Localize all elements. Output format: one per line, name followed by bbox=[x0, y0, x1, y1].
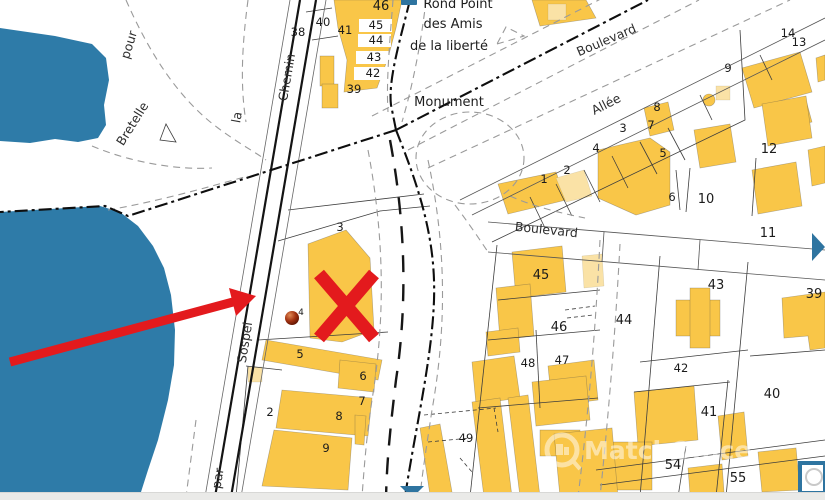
parcel-label: 44 bbox=[616, 313, 633, 328]
parcel-label: 7 bbox=[358, 394, 365, 408]
street-label: par bbox=[209, 466, 227, 490]
water-top-left bbox=[0, 28, 109, 143]
water-areas bbox=[0, 28, 175, 492]
parcel-label: 44 bbox=[369, 33, 384, 47]
building bbox=[582, 254, 604, 288]
parcel-label: 10 bbox=[698, 192, 715, 207]
road-dashed bbox=[126, 0, 266, 160]
street-label: Sospel bbox=[234, 321, 255, 364]
street-label: pour bbox=[117, 28, 140, 61]
parcel-label: 1 bbox=[540, 172, 547, 186]
parcel-line bbox=[676, 170, 680, 210]
pan-right-arrow[interactable] bbox=[812, 233, 825, 261]
parcel-label: 49 bbox=[459, 431, 474, 445]
parcel-label: 54 bbox=[665, 458, 682, 473]
parcel-line bbox=[567, 315, 593, 318]
parcel-label: 4 bbox=[298, 308, 304, 318]
parcel-line bbox=[460, 458, 472, 472]
corner-logo-button[interactable] bbox=[800, 463, 825, 493]
parcel-label: 2 bbox=[266, 405, 273, 419]
parcel-label: 41 bbox=[338, 23, 353, 37]
building bbox=[355, 415, 366, 445]
pan-up-tab[interactable] bbox=[401, 0, 417, 5]
parcel-label: 8 bbox=[653, 100, 660, 114]
street-label: Boulevard bbox=[514, 219, 578, 241]
parcel-label: 46 bbox=[373, 0, 390, 14]
building bbox=[262, 430, 352, 490]
monument-label: Monument bbox=[414, 95, 484, 110]
parcel-label: 5 bbox=[296, 347, 303, 361]
parcel-line bbox=[312, 36, 338, 40]
street-label: Bretelle bbox=[113, 99, 152, 148]
parcel-line bbox=[686, 168, 690, 212]
location-sphere-marker bbox=[285, 311, 299, 325]
parcel-label: 39 bbox=[347, 82, 362, 96]
roundabout-name-line2: des Amis bbox=[423, 17, 482, 32]
water-bottom-left bbox=[0, 206, 175, 492]
parcel-label: 6 bbox=[668, 190, 675, 204]
map-svg: MatchOffice 3840414645444342393567829124… bbox=[0, 0, 825, 500]
map-canvas[interactable]: MatchOffice 3840414645444342393567829124… bbox=[0, 0, 825, 500]
street-label: Allée bbox=[589, 90, 624, 118]
parcel-label: 9 bbox=[724, 61, 731, 75]
parcel-label: 39 bbox=[806, 287, 823, 302]
parcel-label: 40 bbox=[764, 387, 781, 402]
road-dashed bbox=[92, 146, 212, 168]
road-tick bbox=[698, 240, 700, 270]
road-centerline bbox=[386, 140, 403, 497]
road-dashed bbox=[497, 27, 524, 44]
parcel-label: 13 bbox=[792, 35, 807, 49]
parcel-line bbox=[306, 8, 332, 12]
building bbox=[472, 398, 512, 497]
road-dashed bbox=[455, 205, 488, 252]
parcel-label: 6 bbox=[359, 369, 366, 383]
parcel-label: 45 bbox=[533, 268, 550, 283]
parcel-label: 42 bbox=[366, 66, 381, 80]
parcel-line bbox=[668, 128, 685, 160]
bottom-attribution-bar bbox=[0, 492, 825, 500]
parcel-label: 5 bbox=[659, 146, 666, 160]
parcel-label: 41 bbox=[701, 405, 718, 420]
road-dashed bbox=[108, 176, 248, 210]
building bbox=[338, 360, 376, 392]
building bbox=[690, 288, 710, 348]
road-dashed bbox=[242, 0, 248, 122]
street-label: Boulevard bbox=[574, 21, 638, 60]
building bbox=[472, 356, 520, 404]
parcel-line bbox=[750, 350, 825, 356]
parcel-line bbox=[160, 124, 176, 142]
parcel-label: 40 bbox=[316, 15, 331, 29]
parcel-label: 47 bbox=[555, 353, 570, 367]
building bbox=[322, 84, 338, 108]
road-dashed bbox=[186, 420, 196, 497]
roundabout-name-line1: Rond Point bbox=[423, 0, 492, 12]
parcel-label: 43 bbox=[367, 50, 382, 64]
parcel-label: 46 bbox=[551, 320, 568, 335]
parcel-label: 43 bbox=[708, 278, 725, 293]
parcel-line bbox=[278, 206, 430, 241]
parcel-label: 8 bbox=[335, 409, 342, 423]
building bbox=[498, 172, 566, 214]
building bbox=[320, 56, 334, 86]
parcel-label: 4 bbox=[592, 141, 599, 155]
red-arrow-head bbox=[229, 288, 256, 316]
parcel-line bbox=[640, 350, 748, 362]
watermark-logo-icon bbox=[564, 447, 569, 455]
roundabout-name-line3: de la liberté bbox=[410, 39, 488, 54]
parcel-label: 55 bbox=[730, 471, 747, 486]
building bbox=[816, 55, 825, 82]
street-label: Chemin bbox=[275, 52, 298, 102]
boundary-line bbox=[0, 130, 396, 216]
parcel-label: 9 bbox=[322, 441, 329, 455]
parcel-label: 38 bbox=[291, 25, 306, 39]
building bbox=[762, 96, 812, 146]
parcel-label: 2 bbox=[563, 163, 570, 177]
parcel-label: 11 bbox=[760, 226, 777, 241]
poi-labels: Rond Point des Amis de la liberté Monume… bbox=[410, 0, 493, 110]
building bbox=[758, 448, 800, 492]
parcel-label: 48 bbox=[521, 356, 536, 370]
building bbox=[486, 328, 520, 356]
parcel-label: 45 bbox=[369, 18, 384, 32]
parcel-line bbox=[565, 306, 595, 310]
road-tick bbox=[602, 232, 604, 262]
street-label: la bbox=[228, 110, 245, 124]
watermark-logo-icon bbox=[556, 444, 563, 455]
building bbox=[694, 124, 736, 168]
parcel-label: 7 bbox=[647, 118, 654, 132]
parcel-label: 42 bbox=[674, 361, 689, 375]
building bbox=[548, 4, 566, 20]
parcel-label: 12 bbox=[761, 142, 778, 157]
parcel-line bbox=[288, 194, 424, 210]
parcel-label: 3 bbox=[619, 121, 626, 135]
parcel-label: 3 bbox=[336, 220, 343, 234]
building bbox=[808, 146, 825, 186]
building bbox=[752, 162, 802, 214]
roundabout-circle bbox=[416, 112, 524, 204]
